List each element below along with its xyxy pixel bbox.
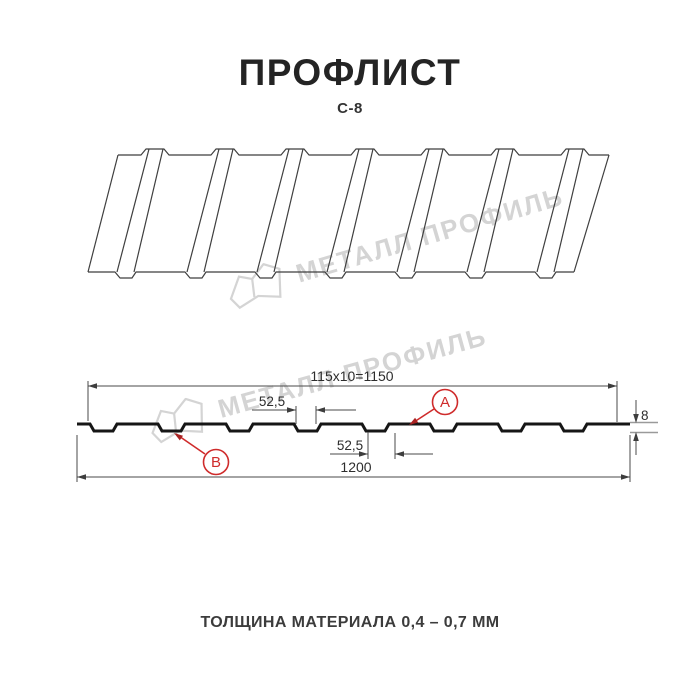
- leader-marker-b: В: [174, 433, 229, 475]
- dim-flange-top-value: 52,5: [259, 394, 285, 409]
- profile-cross-section: [77, 424, 630, 431]
- diagram-canvas: 115x10=1150 1200 52,5: [0, 0, 700, 700]
- dim-profile-height: 8: [630, 400, 658, 455]
- dim-flange-bottom: 52,5: [330, 432, 433, 459]
- leader-marker-a: А: [409, 390, 458, 426]
- marker-a-label: А: [440, 394, 450, 411]
- dim-top-length: 115x10=1150: [88, 368, 617, 422]
- dim-flange-bottom-value: 52,5: [337, 438, 363, 453]
- dim-flange-top: 52,5: [252, 394, 356, 424]
- dim-profile-height-value: 8: [641, 408, 649, 423]
- material-thickness-note: ТОЛЩИНА МАТЕРИАЛА 0,4 – 0,7 ММ: [0, 614, 700, 632]
- dim-overall-width-value: 1200: [340, 459, 371, 475]
- sheet-3d-view: [88, 149, 609, 278]
- product-diagram-page: ПРОФЛИСТ С-8 МЕТАЛЛ ПРОФИЛЬ МЕТАЛЛ ПРОФИ…: [0, 0, 700, 700]
- dim-top-length-value: 115x10=1150: [310, 368, 393, 384]
- marker-b-label: В: [211, 454, 221, 471]
